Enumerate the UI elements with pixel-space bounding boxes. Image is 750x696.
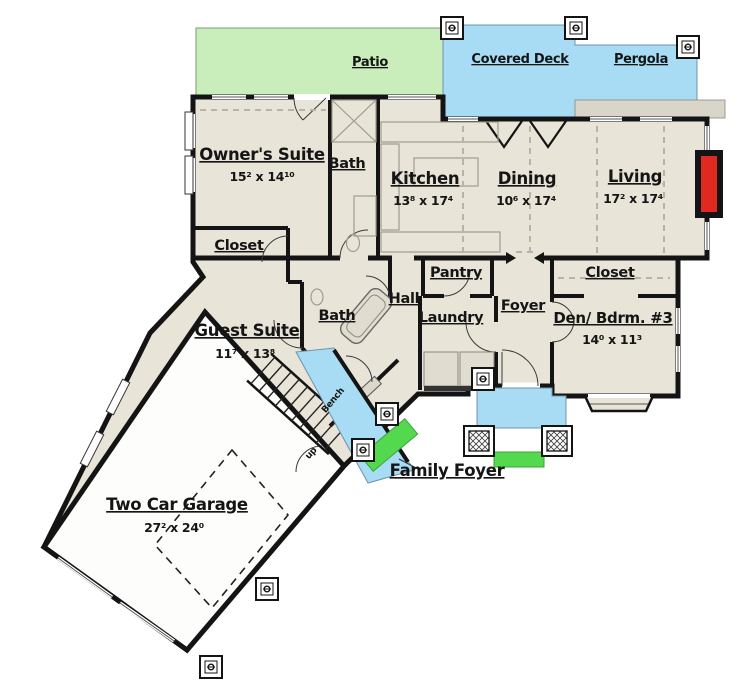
porch-post bbox=[472, 368, 494, 390]
floor-plan-page: Patio Covered Deck Pergola Owner's Suite… bbox=[0, 0, 750, 696]
closet-owner-label: Closet bbox=[214, 238, 264, 254]
owners-suite-dims: 15² x 14¹⁰ bbox=[230, 169, 295, 184]
porch-column bbox=[464, 426, 494, 456]
living-dims: 17² x 17⁴ bbox=[603, 191, 663, 206]
dining-dims: 10⁶ x 17⁴ bbox=[496, 193, 556, 208]
walkway-post bbox=[352, 439, 374, 461]
yard-post bbox=[256, 578, 278, 600]
dining-label: Dining bbox=[498, 169, 557, 188]
laundry-label: Laundry bbox=[419, 310, 484, 326]
deck-post bbox=[441, 17, 463, 39]
guest-suite-label: Guest Suite bbox=[195, 321, 300, 340]
yard-post bbox=[200, 656, 222, 678]
kitchen-dims: 13⁸ x 17⁴ bbox=[393, 193, 453, 208]
covered-deck-label: Covered Deck bbox=[471, 52, 569, 67]
den-dims: 14⁰ x 11³ bbox=[582, 332, 642, 347]
walkway-post bbox=[376, 403, 398, 425]
patio-area bbox=[196, 28, 443, 97]
bath-main-label: Bath bbox=[329, 156, 366, 172]
hall-label: Hall bbox=[389, 291, 420, 307]
bath-guest-label: Bath bbox=[319, 308, 356, 324]
kitchen-label: Kitchen bbox=[391, 169, 460, 188]
pergola-label: Pergola bbox=[614, 52, 668, 67]
owners-suite-label: Owner's Suite bbox=[199, 145, 325, 164]
deck-step-band bbox=[575, 100, 725, 118]
living-label: Living bbox=[608, 167, 662, 186]
garage-label: Two Car Garage bbox=[106, 495, 248, 514]
den-label: Den/ Bdrm. #3 bbox=[553, 309, 672, 327]
family-foyer-label: Family Foyer bbox=[390, 461, 506, 480]
patio-label: Patio bbox=[352, 55, 388, 70]
foyer-label: Foyer bbox=[501, 298, 546, 314]
pergola-post bbox=[677, 36, 699, 58]
porch-column bbox=[542, 426, 572, 456]
pantry-label: Pantry bbox=[430, 265, 483, 281]
deck-post bbox=[565, 17, 587, 39]
floor-plan-drawing: Patio Covered Deck Pergola Owner's Suite… bbox=[0, 0, 750, 696]
guest-suite-dims: 11⁷ x 13⁸ bbox=[215, 346, 275, 361]
fireplace-firebox bbox=[701, 156, 717, 212]
closet-den-label: Closet bbox=[585, 265, 635, 281]
washer bbox=[424, 352, 458, 386]
garage-dims: 27² x 24⁰ bbox=[144, 520, 204, 535]
